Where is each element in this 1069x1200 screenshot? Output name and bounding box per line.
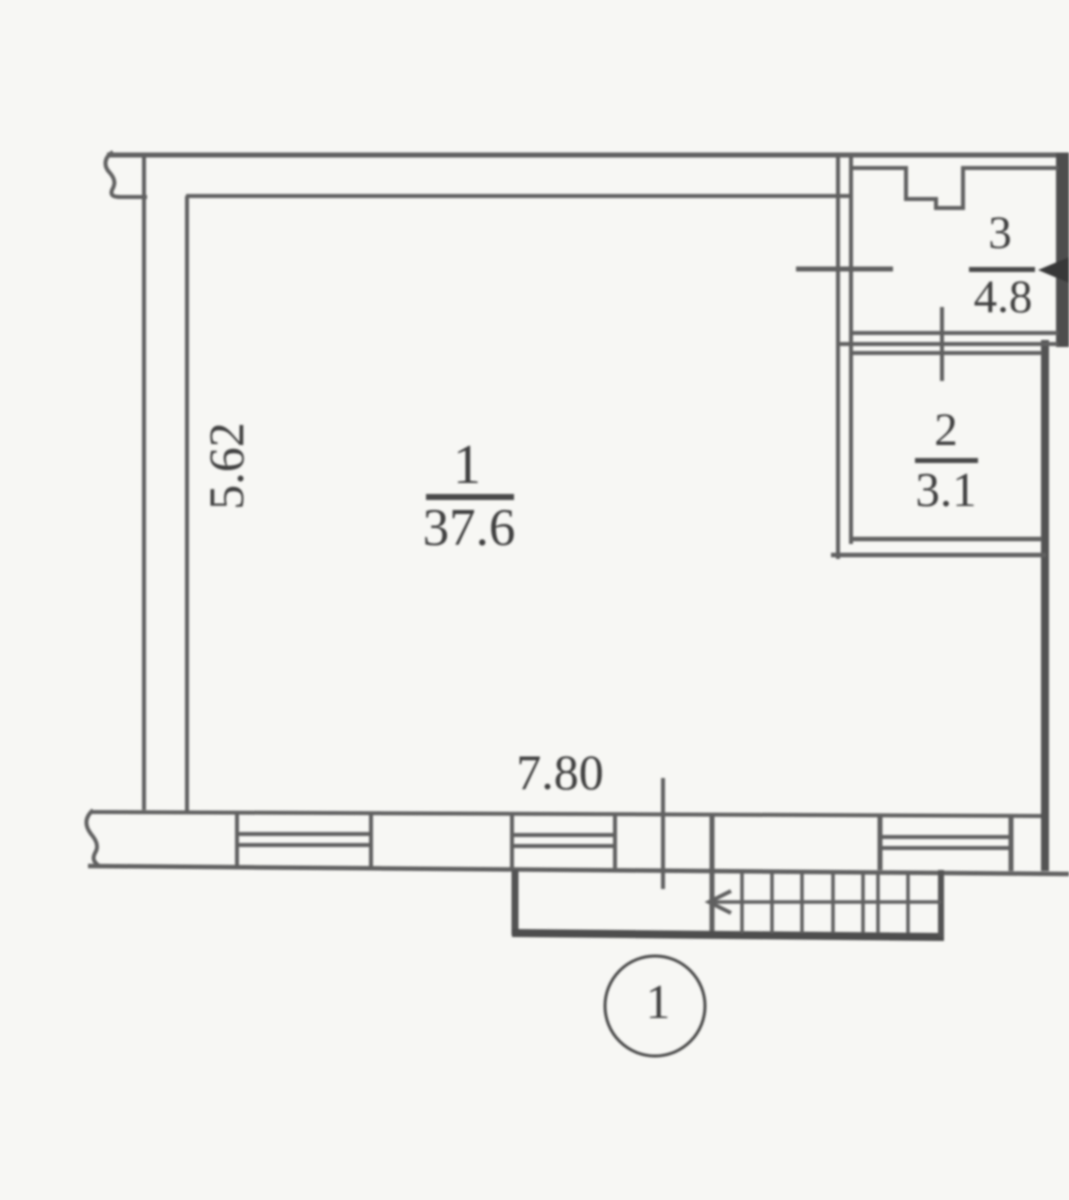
svg-text:5.62: 5.62 [198,422,254,510]
svg-text:2: 2 [934,404,958,456]
svg-text:3: 3 [988,207,1012,259]
svg-text:1: 1 [646,974,671,1029]
svg-text:7.80: 7.80 [516,744,604,800]
svg-text:37.6: 37.6 [423,499,516,557]
svg-text:1: 1 [453,434,481,496]
svg-text:3.1: 3.1 [915,462,976,517]
svg-text:4.8: 4.8 [974,271,1033,323]
